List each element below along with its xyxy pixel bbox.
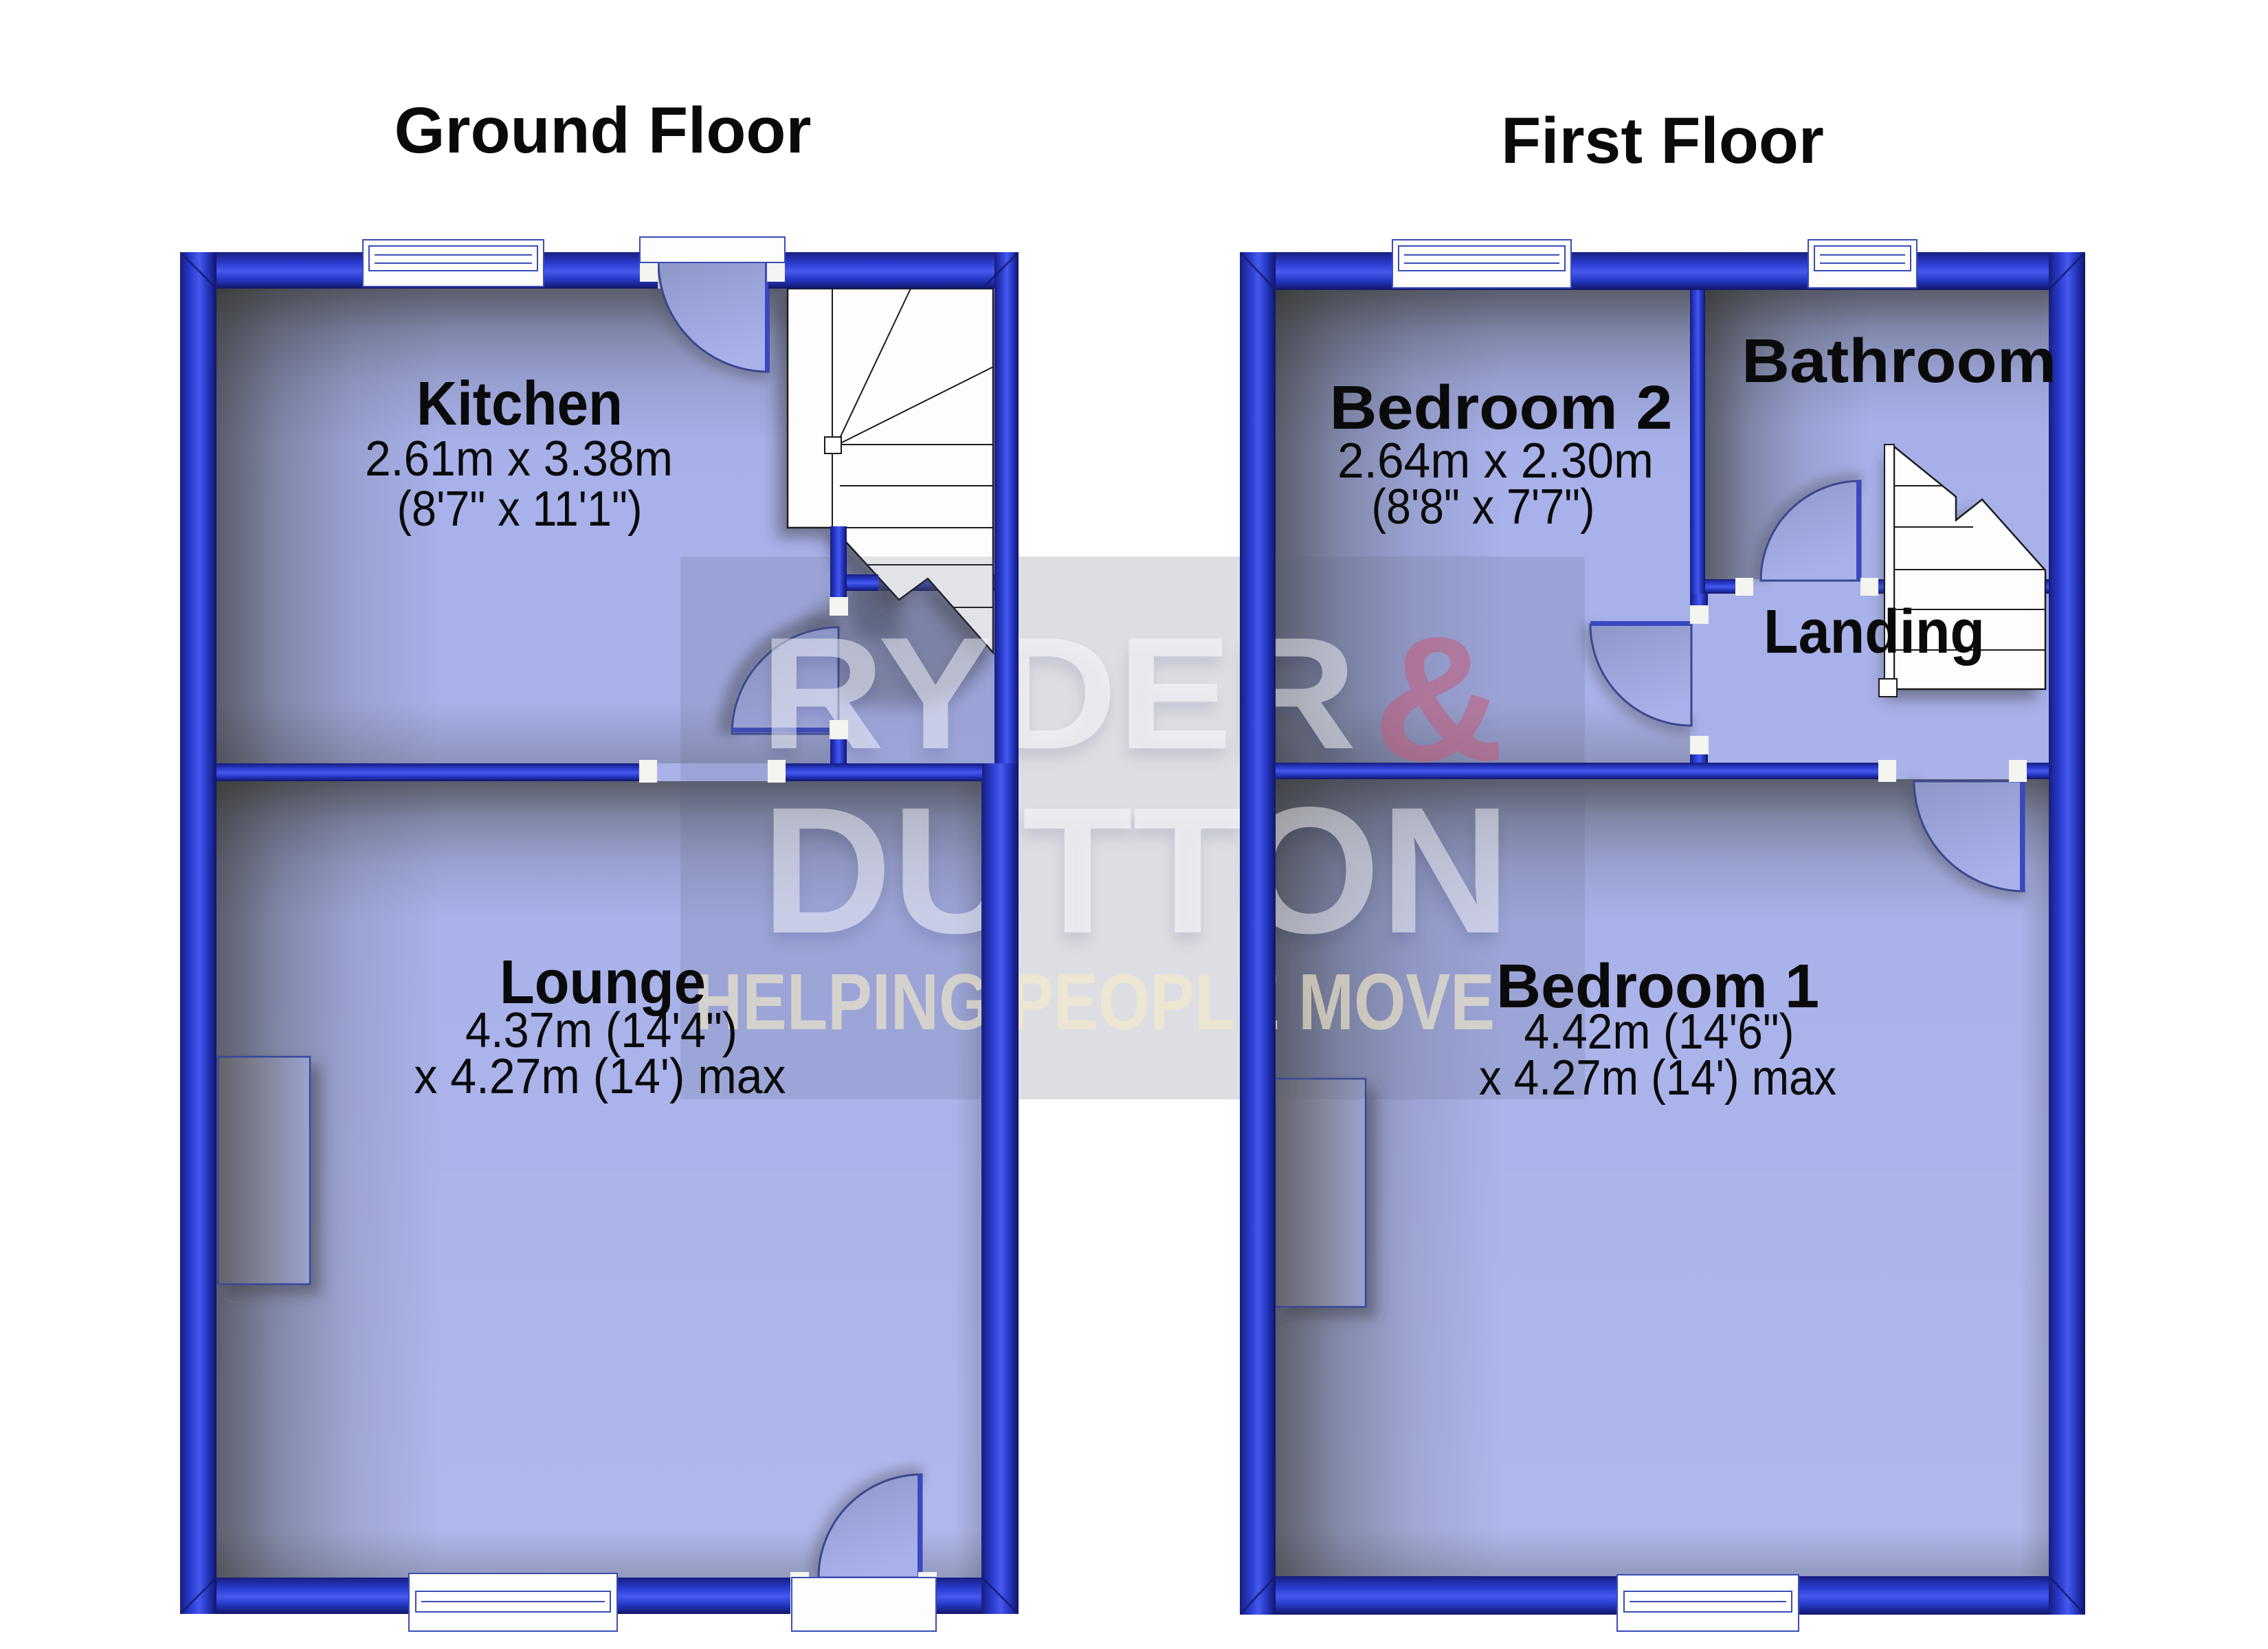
svg-text:Ground Floor: Ground Floor [394,94,812,167]
svg-text:HELPING PEOPLE MOVE: HELPING PEOPLE MOVE [694,957,1495,1046]
svg-text:(8'8" x 7'7"): (8'8" x 7'7") [1372,480,1595,535]
svg-text:Bedroom 2: Bedroom 2 [1330,374,1673,442]
svg-text:DUTTON: DUTTON [761,770,1511,971]
svg-text:First Floor: First Floor [1501,104,1824,177]
svg-text:x 4.27m (14') max: x 4.27m (14') max [414,1049,786,1104]
svg-text:2.61m x 3.38m: 2.61m x 3.38m [365,431,673,486]
svg-text:x 4.27m (14') max: x 4.27m (14') max [1479,1051,1836,1106]
svg-text:Kitchen: Kitchen [416,370,623,438]
svg-text:(8'7" x 11'1"): (8'7" x 11'1") [397,482,643,537]
svg-text:Bathroom: Bathroom [1742,327,2056,396]
svg-text:Landing: Landing [1764,598,1985,666]
